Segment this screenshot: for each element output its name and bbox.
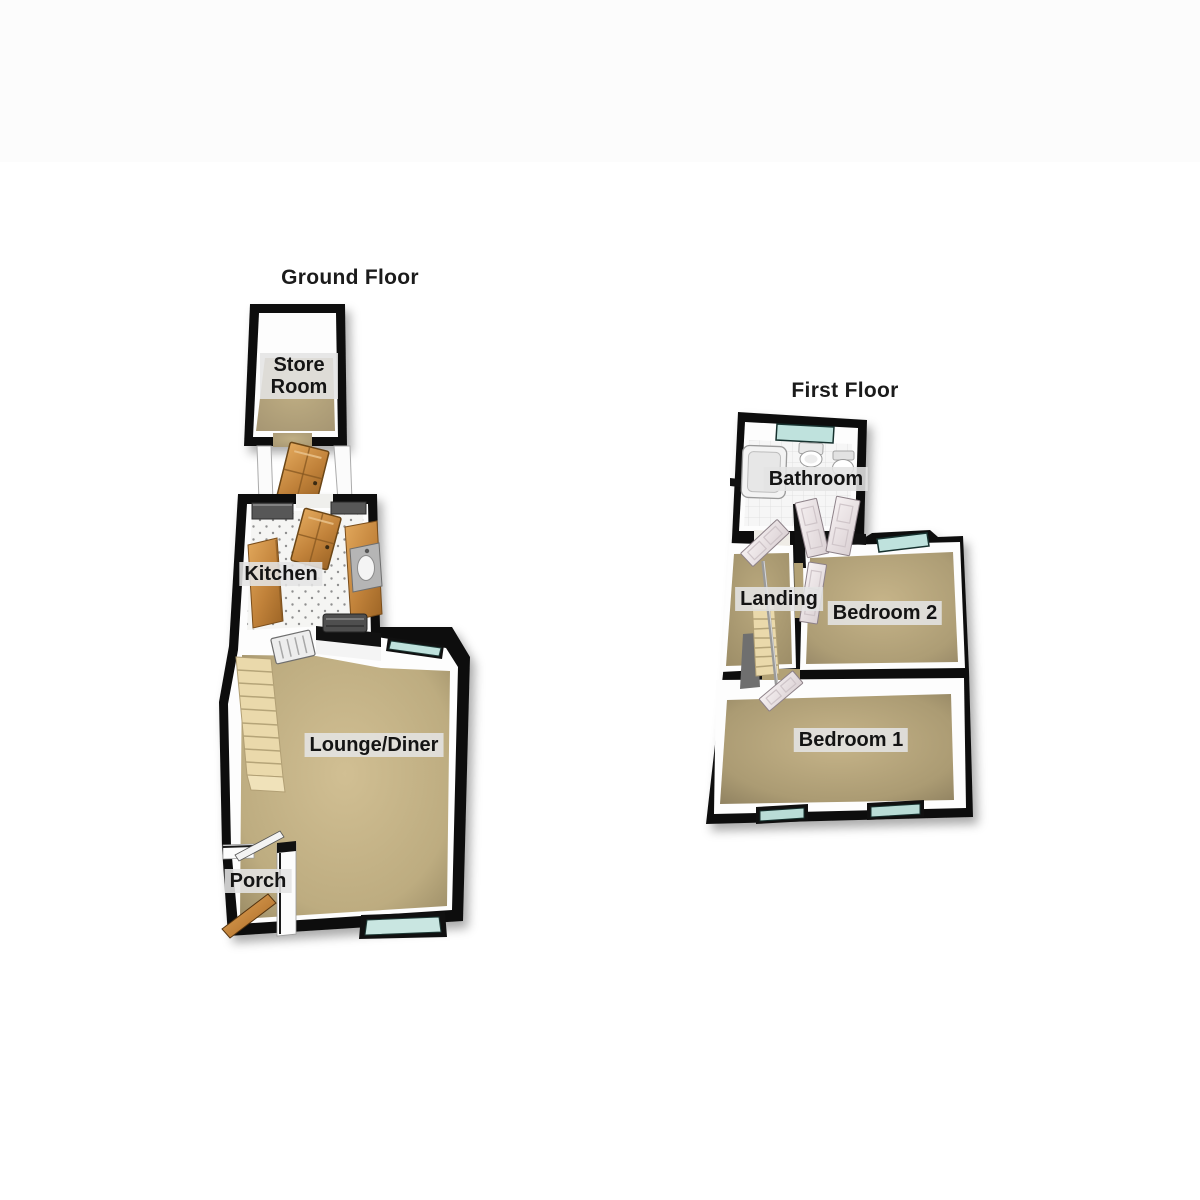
worktop-dark-right xyxy=(331,502,366,514)
store-room-label: Store Room xyxy=(260,353,338,399)
sink-icon xyxy=(799,442,824,467)
landing-label: Landing xyxy=(735,587,823,611)
lounge-diner-label: Lounge/Diner xyxy=(305,733,444,757)
kitchen-sink-icon xyxy=(350,543,382,592)
porch-wall-right-cap xyxy=(277,841,296,853)
bathroom-window-icon xyxy=(776,424,834,443)
ground-floor-title: Ground Floor xyxy=(281,266,419,290)
passage-jamb-left xyxy=(257,446,273,501)
floorplan-page: { "page": { "background": "#ffffff" }, "… xyxy=(0,0,1200,1200)
porch-label: Porch xyxy=(225,869,292,893)
lounge-bottom-window-icon xyxy=(359,912,447,939)
bathroom-label: Bathroom xyxy=(764,467,868,491)
kitchen-radiator-icon xyxy=(323,614,367,632)
ground-floor-plan xyxy=(219,304,470,939)
kitchen-label: Kitchen xyxy=(239,562,322,586)
bedroom-2-label: Bedroom 2 xyxy=(828,601,942,625)
bedroom1-window-left-icon xyxy=(756,804,808,824)
floorplan-canvas xyxy=(0,0,1200,1200)
passage-jamb-right xyxy=(334,446,352,501)
first-floor-title: First Floor xyxy=(791,379,898,403)
kitchen-door-gap xyxy=(296,494,333,508)
bedroom1-window-right-icon xyxy=(867,800,924,820)
bedroom-1-label: Bedroom 1 xyxy=(794,728,908,752)
